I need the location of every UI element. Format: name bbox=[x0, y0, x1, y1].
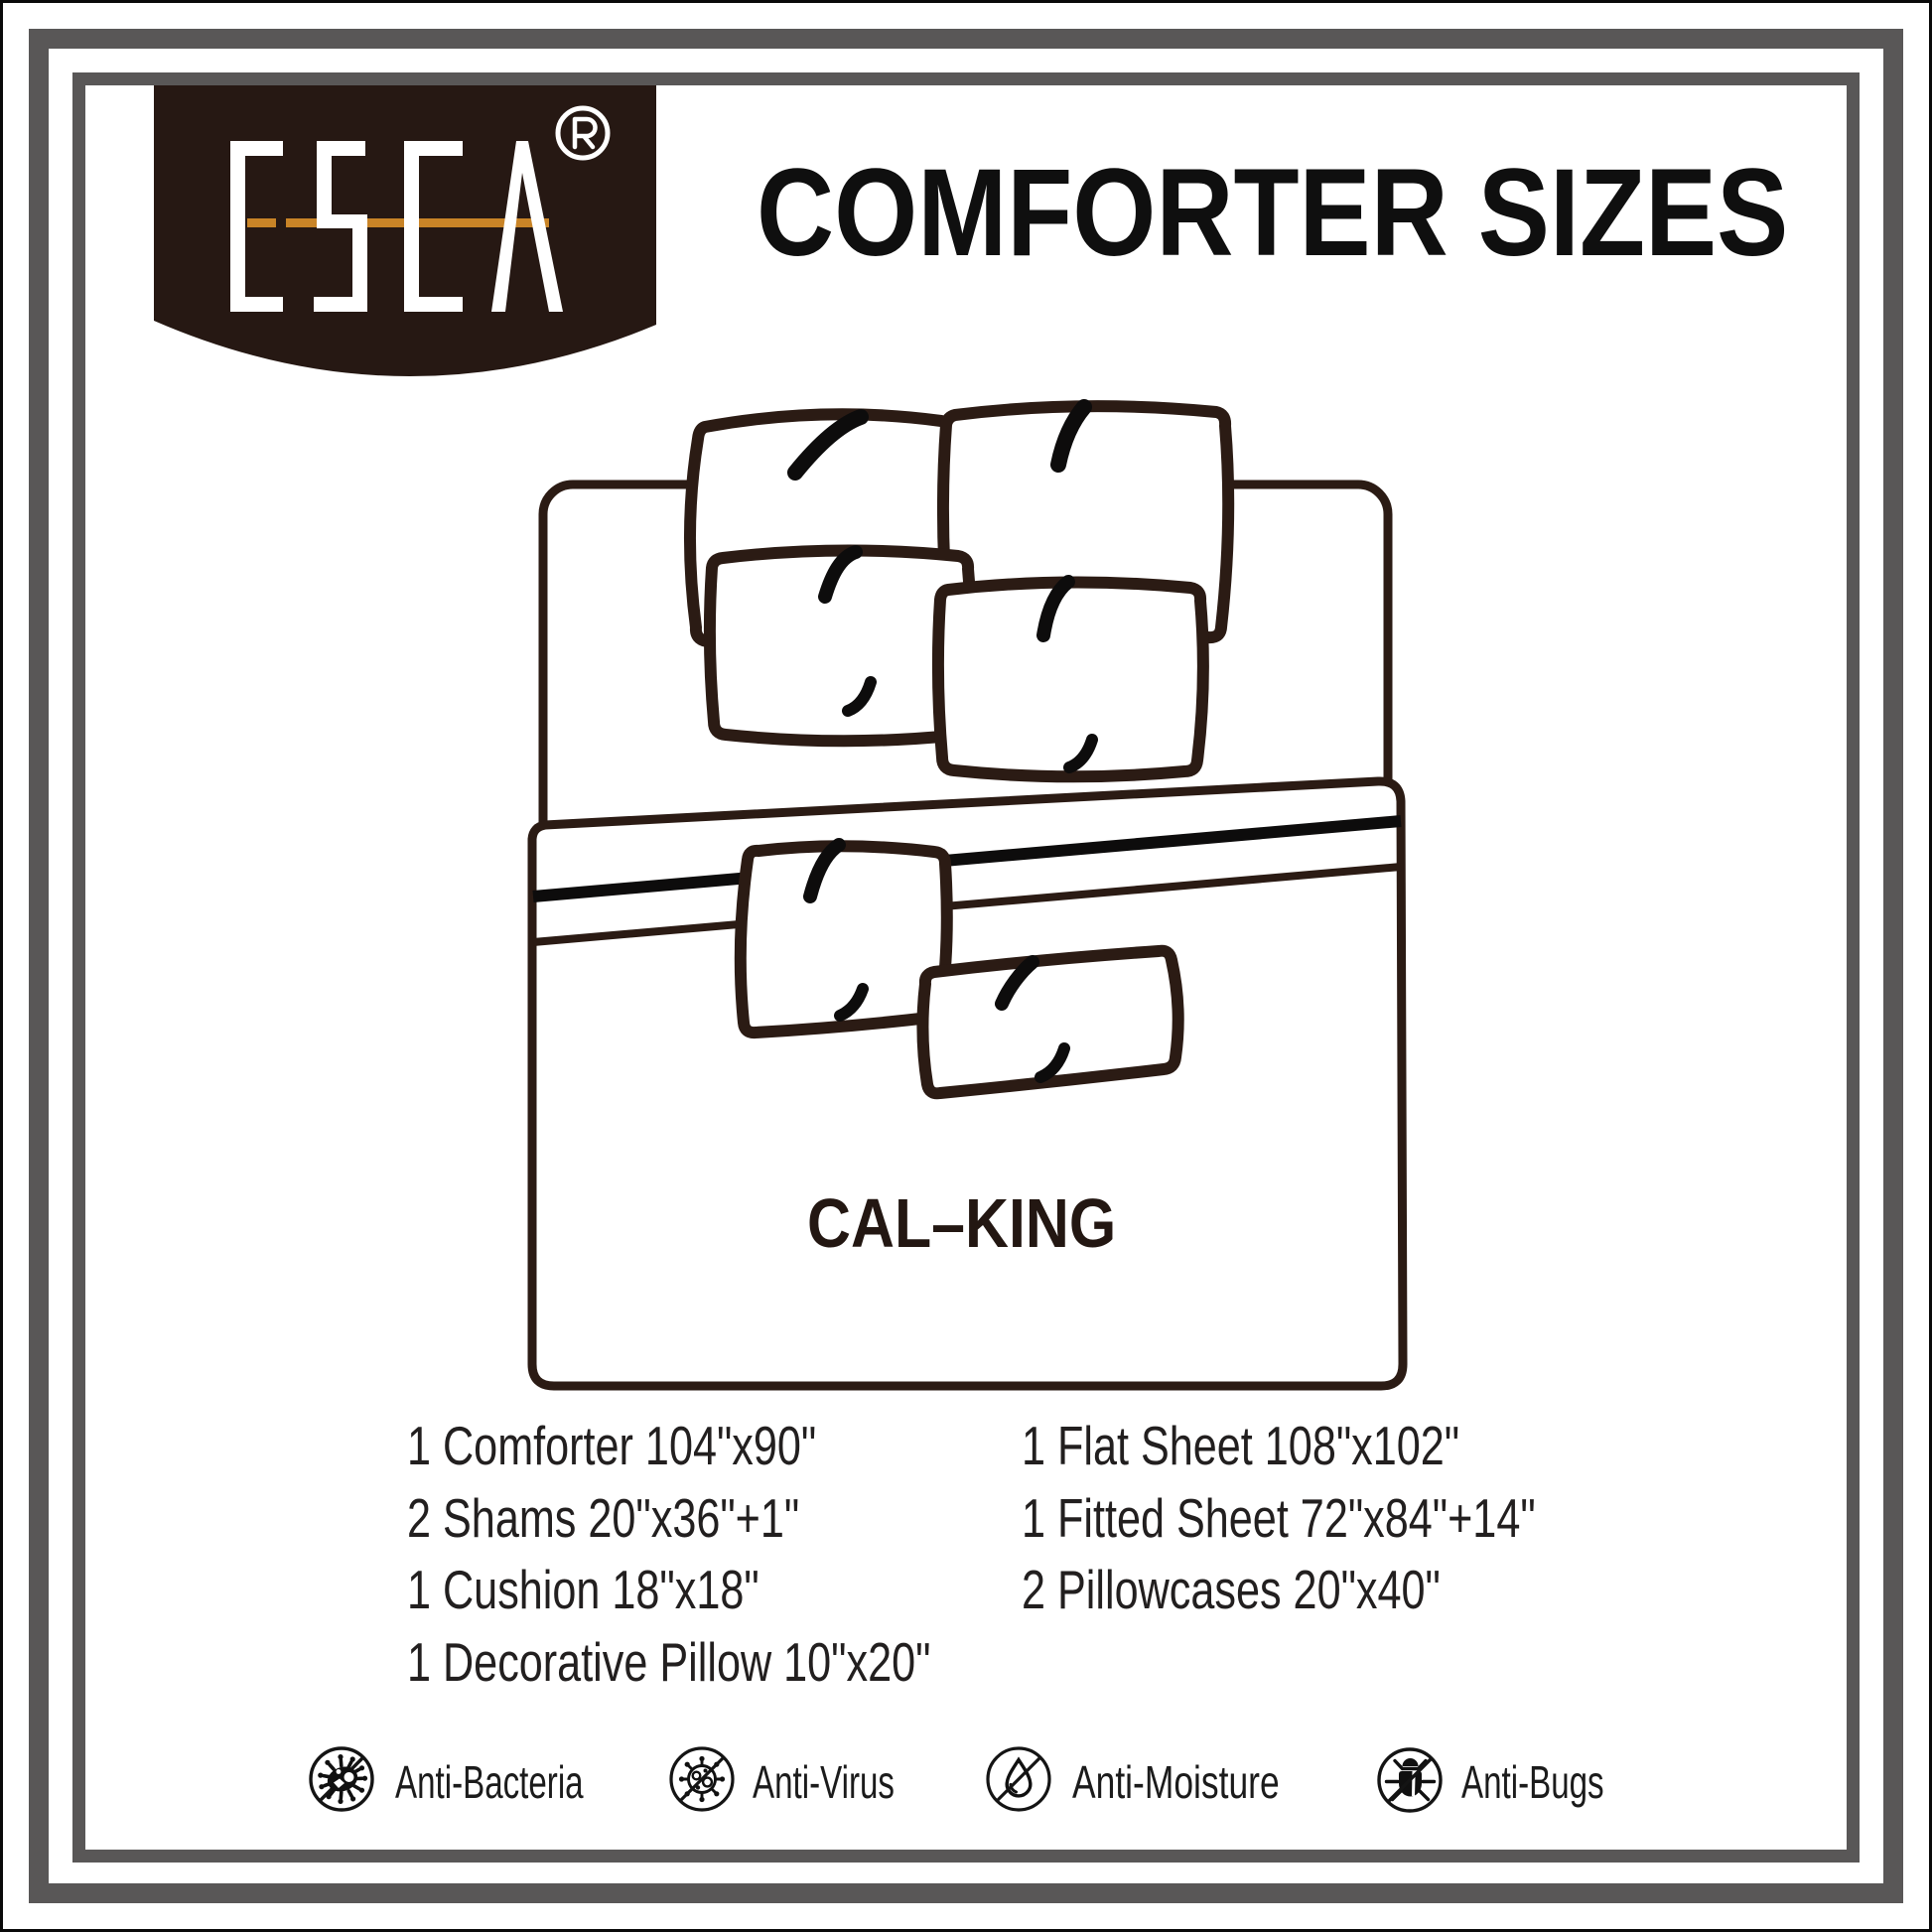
svg-text:CAL–KING: CAL–KING bbox=[807, 1184, 1116, 1262]
